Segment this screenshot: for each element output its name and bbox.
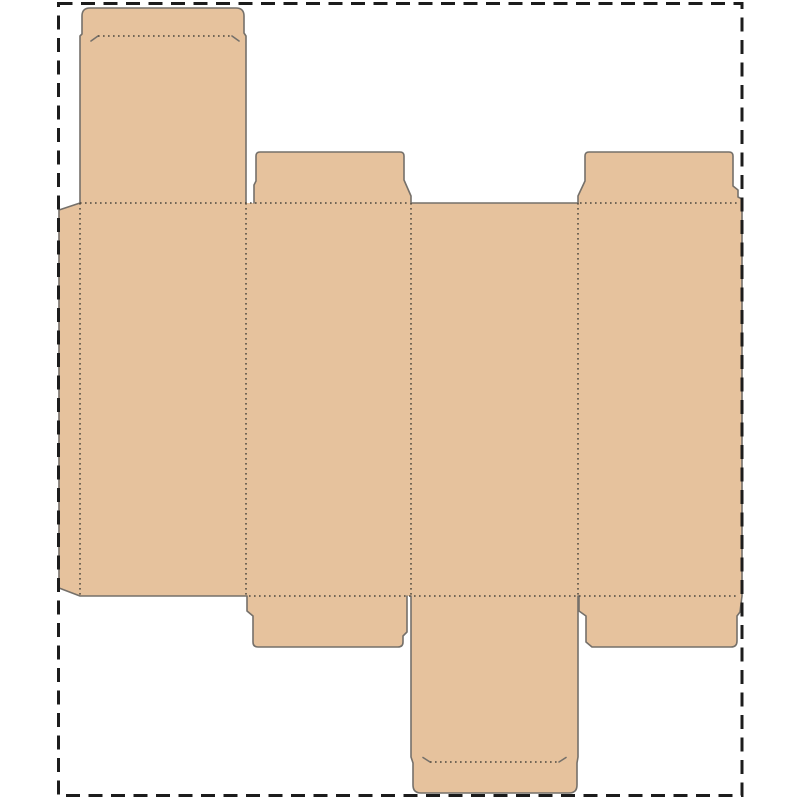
dieline-svg [0,0,800,800]
sheet [0,0,800,800]
